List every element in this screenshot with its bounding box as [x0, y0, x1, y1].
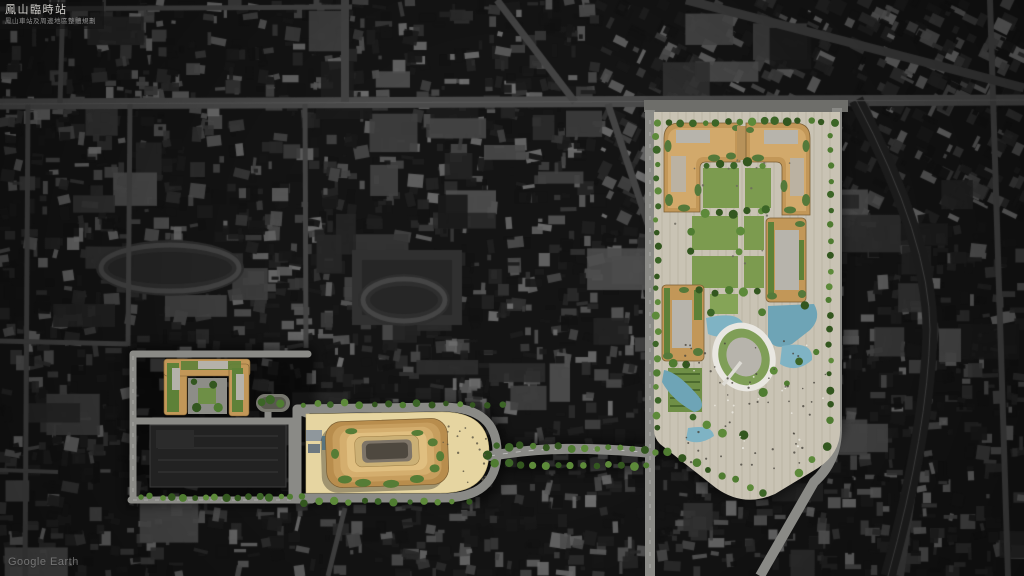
person-dot: [748, 403, 750, 405]
person-dot: [693, 370, 695, 372]
project-title-badge: 鳳山臨時站 鳳山車站及周邊地區整體規劃: [0, 2, 104, 29]
roof-slab: [671, 156, 686, 192]
tree: [362, 498, 368, 504]
roof-garden: [694, 290, 702, 320]
person-dot: [720, 455, 722, 457]
tree: [743, 157, 752, 166]
tree: [827, 252, 834, 259]
tree: [655, 162, 660, 167]
person-dot: [483, 462, 485, 464]
person-dot: [705, 458, 707, 460]
tree: [701, 209, 710, 218]
tree: [160, 495, 166, 501]
tree: [795, 469, 804, 478]
person-dot: [727, 399, 729, 401]
tree: [655, 397, 662, 404]
tree: [730, 162, 737, 169]
tree: [429, 401, 436, 408]
person-dot: [447, 431, 448, 432]
tree: [484, 402, 490, 408]
tree: [828, 162, 834, 168]
tree: [466, 499, 472, 505]
tree: [516, 441, 524, 449]
tree: [530, 443, 536, 449]
tree: [754, 288, 761, 295]
person-dot: [795, 443, 797, 445]
roof-slab: [172, 368, 180, 390]
person-dot: [801, 447, 803, 449]
tree: [279, 494, 284, 499]
tree: [490, 459, 499, 468]
person-dot: [773, 467, 775, 469]
person-dot: [809, 414, 811, 416]
tree: [235, 495, 242, 502]
person-dot: [689, 344, 691, 346]
station-terraced-building: [320, 418, 449, 493]
person-dot: [773, 368, 775, 370]
person-dot: [739, 436, 741, 438]
tree: [168, 493, 176, 501]
roof-slab: [764, 130, 798, 144]
tree: [827, 221, 833, 227]
tree: [693, 458, 702, 467]
person-dot: [710, 370, 712, 372]
person-dot: [744, 262, 746, 264]
tree: [315, 400, 322, 407]
tree: [653, 175, 659, 181]
person-dot: [690, 461, 692, 463]
tree: [823, 442, 832, 451]
tree: [245, 493, 252, 500]
tree: [682, 361, 690, 369]
person-dot: [736, 159, 738, 161]
tree: [829, 179, 834, 184]
tree: [299, 493, 306, 500]
roof-garden: [799, 240, 804, 280]
tree: [652, 312, 660, 320]
person-dot: [485, 438, 487, 440]
tree: [443, 401, 449, 407]
person-dot: [457, 435, 459, 437]
person-dot: [781, 390, 783, 392]
existing-dark-roof-structure: [150, 425, 286, 487]
person-dot: [751, 464, 753, 466]
person-dot: [484, 476, 486, 478]
tree: [826, 417, 833, 424]
link-bridge: [737, 126, 746, 160]
tree: [457, 401, 463, 407]
person-dot: [483, 454, 485, 456]
person-dot: [742, 447, 744, 449]
project-title: 鳳山臨時站: [5, 4, 96, 17]
person-dot: [702, 184, 704, 186]
person-dot: [793, 432, 794, 433]
person-dot: [714, 366, 716, 368]
person-dot: [719, 382, 721, 384]
tree: [809, 117, 815, 123]
person-dot: [766, 214, 768, 216]
tree: [655, 257, 662, 264]
person-dot: [467, 482, 469, 484]
roof-slab: [672, 300, 692, 348]
tree: [739, 430, 748, 439]
tree: [654, 119, 661, 126]
roof-slab: [676, 130, 710, 143]
tree: [827, 191, 834, 198]
tree: [580, 462, 587, 469]
tree: [191, 379, 197, 385]
person-dot: [740, 463, 742, 465]
tree: [795, 358, 803, 366]
person-dot: [787, 385, 789, 387]
tree: [761, 117, 769, 125]
tree: [449, 499, 454, 504]
person-dot: [754, 452, 756, 454]
tree: [707, 309, 715, 317]
tree: [566, 462, 573, 469]
tree: [655, 203, 661, 209]
tree: [211, 494, 218, 501]
roof-slab: [236, 374, 244, 400]
tree: [653, 285, 658, 290]
tree: [300, 500, 308, 508]
roof-slab: [775, 230, 799, 290]
person-dot: [797, 355, 799, 357]
person-dot: [763, 162, 765, 164]
person-dot: [772, 448, 774, 450]
tree: [420, 498, 427, 505]
person-dot: [728, 168, 730, 170]
tree: [301, 403, 306, 408]
tree: [725, 286, 733, 294]
person-dot: [725, 425, 727, 427]
tree: [581, 445, 588, 452]
tree: [653, 146, 661, 154]
tree: [689, 119, 697, 127]
tree: [758, 308, 766, 316]
person-dot: [690, 348, 692, 350]
person-dot: [459, 430, 461, 432]
tree: [629, 446, 635, 452]
person-dot: [797, 445, 799, 447]
tree: [827, 371, 832, 376]
person-dot: [757, 401, 759, 403]
tree: [712, 290, 719, 297]
tree: [818, 119, 824, 125]
tree: [695, 286, 702, 293]
roof-slab: [198, 361, 228, 369]
person-dot: [472, 436, 474, 438]
tree: [500, 401, 507, 408]
masterplan-overlay: [0, 0, 1024, 576]
tree: [407, 499, 412, 504]
tree: [732, 476, 739, 483]
tree: [555, 442, 562, 449]
person-dot: [464, 427, 466, 429]
tree: [330, 497, 338, 505]
tree: [827, 401, 834, 408]
tree: [663, 448, 671, 456]
tree: [654, 425, 660, 431]
person-dot: [686, 437, 688, 439]
tree: [654, 187, 661, 194]
person-dot: [698, 362, 700, 364]
person-dot: [684, 355, 686, 357]
tree: [762, 205, 770, 213]
person-dot: [697, 450, 699, 452]
tree: [831, 119, 839, 127]
person-dot: [727, 394, 728, 395]
tree: [266, 395, 275, 404]
tree: [630, 462, 639, 471]
person-dot: [729, 421, 731, 423]
person-dot: [792, 353, 794, 355]
project-subtitle: 鳳山車站及周邊地區整體規劃: [5, 18, 96, 26]
person-dot: [802, 388, 804, 390]
tree: [748, 118, 756, 126]
tree: [605, 461, 612, 468]
tree: [690, 414, 697, 421]
tree: [743, 207, 750, 214]
tree: [375, 498, 382, 505]
tree: [654, 355, 661, 362]
tree: [209, 381, 217, 389]
tree: [828, 358, 834, 364]
tree: [287, 494, 293, 500]
tree: [214, 403, 223, 412]
tree: [825, 341, 831, 347]
person-dot: [753, 376, 755, 378]
rooftop-court: [366, 442, 409, 459]
person-dot: [476, 442, 478, 444]
tree: [739, 287, 748, 296]
tree: [826, 297, 832, 303]
person-dot: [825, 374, 826, 375]
tree: [703, 120, 709, 126]
tree: [146, 493, 152, 499]
park-building-west: [662, 285, 704, 361]
person-dot: [768, 377, 770, 379]
person-dot: [674, 223, 676, 225]
person-dot: [731, 382, 733, 384]
roof-slab: [790, 158, 804, 196]
tree: [470, 402, 476, 408]
tree: [829, 208, 834, 213]
tree: [203, 494, 209, 500]
tree: [828, 133, 833, 138]
person-dot: [736, 185, 738, 187]
tree: [801, 301, 809, 309]
tree: [192, 403, 201, 412]
person-dot: [784, 387, 786, 389]
person-dot: [744, 440, 746, 442]
tree: [827, 147, 833, 153]
courtyard-lawn: [198, 388, 216, 404]
tree: [725, 118, 732, 125]
person-dot: [447, 443, 449, 445]
person-dot: [798, 462, 800, 464]
tree: [179, 494, 187, 502]
person-dot: [463, 470, 465, 472]
person-dot: [685, 344, 687, 346]
tree: [652, 133, 659, 140]
tree: [655, 243, 662, 250]
tree: [315, 497, 323, 505]
tree: [493, 442, 499, 448]
tree: [258, 398, 266, 406]
person-dot: [697, 431, 699, 433]
park-building-east: [766, 218, 806, 302]
tree: [643, 462, 649, 468]
tree: [641, 446, 649, 454]
tree: [828, 238, 834, 244]
tree: [400, 402, 407, 409]
tree: [655, 299, 661, 305]
tree: [653, 341, 659, 347]
tree: [345, 499, 351, 505]
tree: [759, 388, 768, 397]
person-dot: [733, 405, 735, 407]
tree: [759, 489, 767, 497]
person-dot: [757, 398, 759, 400]
tree: [794, 117, 800, 123]
person-dot: [761, 250, 763, 252]
tree: [505, 443, 514, 452]
person-dot: [714, 405, 716, 407]
tree: [257, 493, 264, 500]
tree: [747, 484, 754, 491]
tree: [653, 412, 661, 420]
roof-garden: [768, 222, 774, 298]
tree: [783, 117, 792, 126]
person-dot: [755, 347, 757, 349]
tree: [669, 359, 678, 368]
tree: [276, 400, 284, 408]
tree: [703, 421, 711, 429]
person-dot: [732, 411, 734, 413]
person-dot: [813, 382, 815, 384]
person-dot: [788, 401, 790, 403]
tree: [385, 400, 392, 407]
tree: [809, 456, 816, 463]
tree: [594, 446, 600, 452]
tree: [666, 119, 672, 125]
tree: [529, 462, 536, 469]
tree: [617, 445, 623, 451]
tree: [736, 248, 743, 255]
person-dot: [755, 373, 757, 375]
person-dot: [756, 167, 758, 169]
tree: [704, 163, 710, 169]
tree: [327, 401, 334, 408]
google-earth-watermark: Google Earth: [8, 556, 79, 568]
tree: [652, 449, 658, 455]
tree: [341, 399, 349, 407]
tree: [678, 454, 686, 462]
person-dot: [750, 187, 752, 189]
person-dot: [789, 162, 791, 164]
tree: [594, 463, 601, 470]
person-dot: [687, 362, 689, 364]
person-dot: [724, 342, 726, 344]
tree: [716, 160, 724, 168]
tree: [813, 349, 819, 355]
tree: [736, 227, 745, 236]
person-dot: [482, 478, 484, 480]
tree: [413, 399, 421, 407]
masterplan-aerial-view: 鳳山臨時站 鳳山車站及周邊地區整體規劃 Google Earth: [0, 0, 1024, 576]
person-dot: [457, 452, 459, 454]
tree: [555, 462, 561, 468]
tree: [192, 495, 198, 501]
tree: [712, 119, 720, 127]
person-dot: [448, 425, 450, 427]
person-dot: [479, 449, 481, 451]
person-dot: [802, 405, 804, 407]
tree: [828, 269, 834, 275]
transit-park-block: [644, 106, 848, 576]
person-dot: [727, 377, 729, 379]
person-dot: [806, 345, 808, 347]
person-dot: [798, 439, 800, 441]
tree: [687, 248, 694, 255]
tree: [770, 367, 778, 375]
person-dot: [694, 168, 696, 170]
person-dot: [749, 381, 751, 383]
tree: [654, 274, 660, 280]
tree: [784, 381, 790, 387]
tree: [676, 120, 684, 128]
tree: [687, 228, 695, 236]
person-dot: [783, 340, 785, 342]
tree: [618, 462, 625, 469]
person-dot: [747, 387, 749, 389]
person-dot: [687, 442, 689, 444]
person-dot: [791, 412, 793, 414]
tree: [705, 467, 711, 473]
tree: [716, 209, 723, 216]
tree: [355, 401, 363, 409]
tree: [505, 459, 513, 467]
person-dot: [732, 255, 734, 257]
person-dot: [749, 384, 750, 385]
tree: [653, 217, 658, 222]
tree: [543, 444, 550, 451]
tree: [653, 384, 659, 390]
tree: [568, 445, 576, 453]
tree: [389, 498, 397, 506]
person-dot: [822, 397, 824, 399]
roof-garden: [664, 288, 670, 358]
tree: [826, 387, 834, 395]
tree: [826, 283, 833, 290]
tree: [605, 444, 611, 450]
person-dot: [442, 442, 443, 443]
person-dot: [767, 402, 769, 404]
tree: [542, 462, 550, 470]
tree: [517, 461, 524, 468]
tree: [719, 472, 726, 479]
tree: [265, 493, 273, 501]
person-dot: [811, 401, 813, 403]
person-dot: [704, 352, 706, 354]
tree: [654, 230, 660, 236]
tree: [737, 119, 744, 126]
tree: [718, 429, 727, 438]
tree: [729, 210, 738, 219]
tree: [770, 117, 778, 125]
person-dot: [793, 451, 795, 453]
